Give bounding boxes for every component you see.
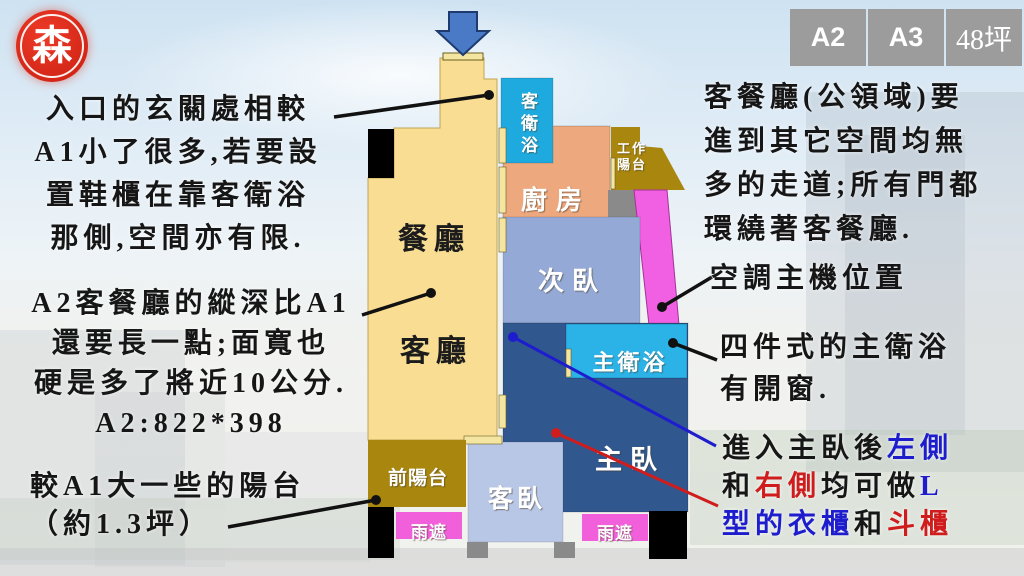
guest-bath-door [499, 128, 506, 163]
column-bottom-right [649, 511, 687, 559]
entrance-arrow-icon [437, 12, 489, 55]
room-label-guest-bedroom: 客臥 [481, 479, 553, 515]
service-gray-block [608, 190, 638, 217]
note-wardrobe: 進入主臥後左側 和右側均可做L 型的衣櫃和斗櫃 [722, 430, 953, 544]
room-label-second-bedroom: 次臥 [520, 261, 624, 298]
room-label-front-balcony: 前陽台 [376, 463, 460, 490]
note-public-area: 客餐廳(公領域)要 進到其它空間均無 多的走道;所有門都 環繞著客餐廳. [704, 76, 982, 252]
room-label-kitchen: 廚房 [505, 180, 607, 217]
room-label-living: 客廳 [396, 326, 476, 370]
room-label-rain-cover-left: 雨遮 [398, 518, 460, 543]
room-label-dining: 餐廳 [394, 214, 474, 258]
footing-right [554, 542, 575, 558]
second-bedroom-door [499, 218, 506, 252]
room-label-master-bath: 主衛浴 [580, 345, 680, 377]
note-balcony: 較A1大一些的陽台 （約1.3坪） [30, 468, 305, 544]
slide: 森 A2 A3 48坪 [0, 0, 1024, 576]
room-label-master-bedroom: 主臥 [578, 438, 682, 477]
master-bath-door [566, 349, 571, 377]
room-label-rain-cover-right: 雨遮 [584, 519, 646, 544]
master-bedroom-door [499, 395, 506, 428]
note-master-bath: 四件式的主衛浴 有開窗. [720, 327, 951, 411]
guest-bedroom-door [464, 436, 502, 444]
column-bottom-left [368, 507, 394, 558]
note-entry: 入口的玄關處相較 A1小了很多,若要設 置鞋櫃在靠客衛浴 那側,空間亦有限. [18, 88, 338, 260]
ac-unit-strip [634, 190, 679, 325]
footing-left [467, 542, 488, 558]
column-left [368, 129, 394, 178]
note-ac: 空調主機位置 [710, 256, 908, 296]
note-living-depth: A2客餐廳的縱深比A1 還要長一點;面寬也 硬是多了將近10公分. A2:822… [0, 284, 382, 444]
room-label-guest-bath: 客衛浴 [515, 88, 540, 162]
room-label-work-balcony: 工作陽台 [613, 141, 651, 172]
